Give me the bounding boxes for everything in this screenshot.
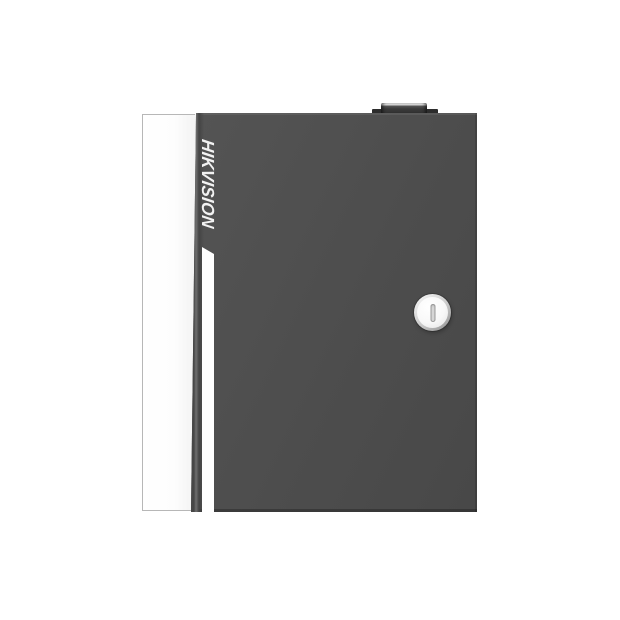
- lock-face: [417, 297, 448, 328]
- enclosure-side-panel: [142, 114, 195, 511]
- enclosure-front-door: HIKVISION: [191, 113, 477, 512]
- accent-stripe: [202, 247, 214, 512]
- keyhole-slot-icon: [430, 304, 435, 322]
- brand-logo-text: HIKVISION: [198, 138, 218, 229]
- door-lock: [414, 294, 451, 331]
- product-photo-canvas: HIKVISION: [0, 0, 620, 620]
- top-hinge-knob: [381, 103, 427, 114]
